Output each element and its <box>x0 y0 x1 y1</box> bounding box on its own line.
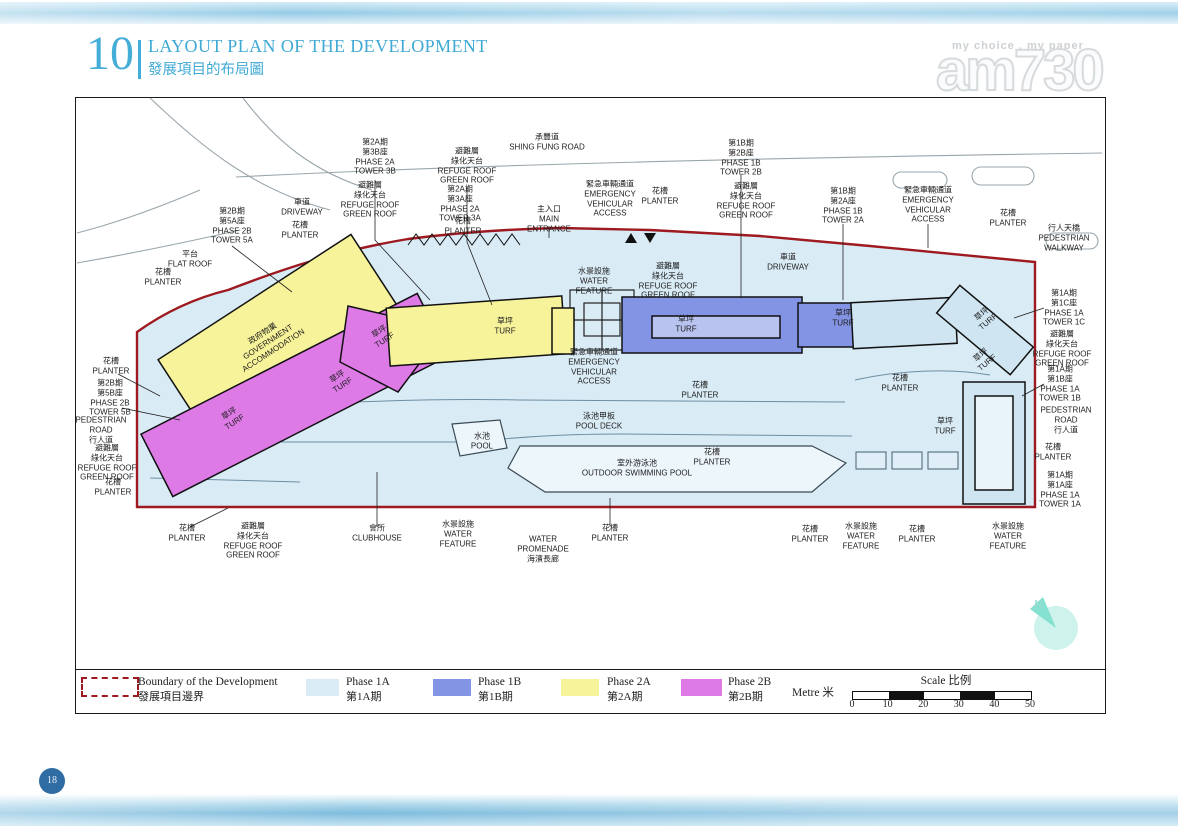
scale-tick-label: 50 <box>1020 699 1040 710</box>
page-title-chinese: 發展項目的布局圖 <box>148 58 264 79</box>
phase1a-block-west <box>851 297 957 348</box>
phase2a-tower-block <box>386 296 566 366</box>
watercolor-band-top <box>0 2 1178 24</box>
scale-tick-label: 10 <box>878 699 898 710</box>
site-plan-drawing: N <box>75 97 1104 668</box>
watercolor-band-bottom <box>0 794 1178 826</box>
phase-legend-label-zh: 第1A期 <box>346 690 381 705</box>
phase2a-annex <box>552 308 574 354</box>
boundary-legend-label-zh: 發展項目邊界 <box>138 690 204 705</box>
north-compass-icon: N <box>1030 597 1078 650</box>
scale-title: Scale 比例 <box>866 672 1026 688</box>
scale-bar-segment <box>889 692 925 699</box>
legend: Boundary of the Development 發展項目邊界 Phase… <box>76 671 1105 713</box>
phase-legend-label: Phase 2A <box>607 675 651 690</box>
outdoor-swimming-pool <box>508 446 846 492</box>
scale-bar-segment <box>853 692 889 699</box>
scale-bar-segment <box>995 692 1031 699</box>
ancillary-structures <box>856 452 958 469</box>
scale-tick-label: 40 <box>984 699 1004 710</box>
section-number: 10 <box>86 30 134 78</box>
scale-bar-segment <box>924 692 960 699</box>
phase-legend-swatch <box>561 679 599 696</box>
phase-legend-label-zh: 第2B期 <box>728 690 763 705</box>
phase-legend-label: Phase 1B <box>478 675 521 690</box>
phase-legend-swatch <box>433 679 471 696</box>
scale-tick-label: 0 <box>842 699 862 710</box>
watermark-tagline: my choice . my paper <box>952 40 1084 52</box>
boundary-legend-swatch <box>81 677 139 697</box>
header-divider <box>138 40 141 79</box>
phase-legend-label-zh: 第2A期 <box>607 690 642 705</box>
phase1a-tower-core <box>975 396 1013 490</box>
am730-logo: am730 <box>936 42 1102 100</box>
compass-north-label: N <box>1034 597 1043 612</box>
phase-legend-label: Phase 1A <box>346 675 390 690</box>
phase-legend-label: Phase 2B <box>728 675 771 690</box>
boundary-legend-label: Boundary of the Development <box>138 675 278 690</box>
phase1b-turf-strip <box>652 316 780 338</box>
scale-metre-label: Metre 米 <box>792 684 834 700</box>
page-number-badge: 18 <box>39 768 65 794</box>
page-title: LAYOUT PLAN OF THE DEVELOPMENT <box>148 36 488 57</box>
scale-tick-label: 20 <box>913 699 933 710</box>
phase-legend-label-zh: 第1B期 <box>478 690 513 705</box>
scale-bar-segment <box>960 692 996 699</box>
phase-legend-swatch <box>681 679 722 696</box>
scale-tick-label: 30 <box>949 699 969 710</box>
brochure-page: 10 LAYOUT PLAN OF THE DEVELOPMENT 發展項目的布… <box>0 0 1178 826</box>
phase-legend-swatch <box>306 679 339 696</box>
